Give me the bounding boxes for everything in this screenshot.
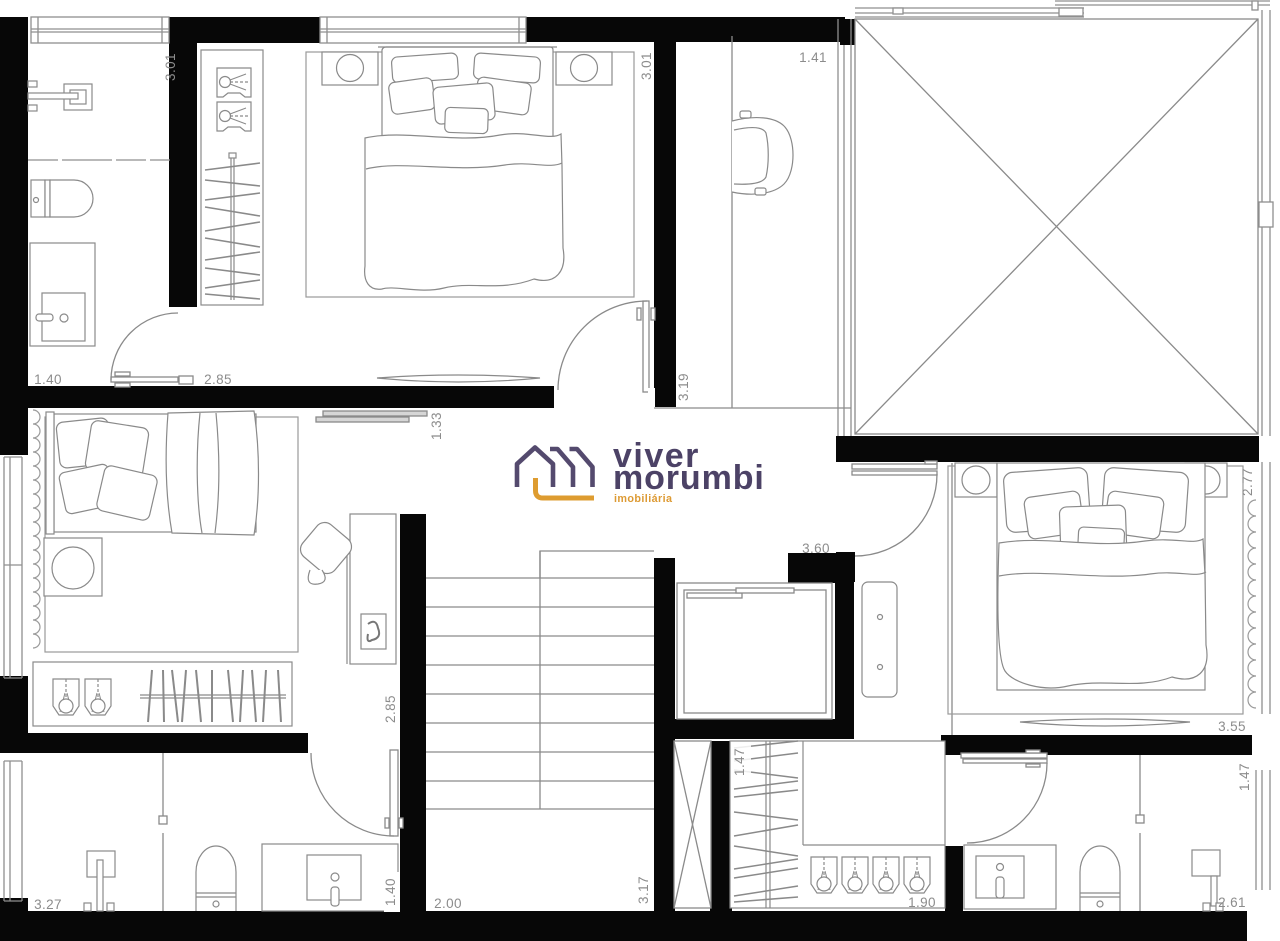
svg-text:3.19: 3.19 xyxy=(676,373,691,401)
svg-text:3.55: 3.55 xyxy=(1218,719,1246,734)
svg-text:1.47: 1.47 xyxy=(1237,763,1252,791)
svg-text:3.17: 3.17 xyxy=(636,876,651,904)
svg-text:1.41: 1.41 xyxy=(799,50,827,65)
svg-text:2.85: 2.85 xyxy=(383,695,398,723)
svg-text:2.00: 2.00 xyxy=(434,896,462,911)
svg-text:3.60: 3.60 xyxy=(802,541,830,556)
svg-text:3.27: 3.27 xyxy=(34,897,62,912)
svg-text:3.01: 3.01 xyxy=(163,53,178,81)
svg-text:1.90: 1.90 xyxy=(908,895,936,910)
svg-text:2.85: 2.85 xyxy=(204,372,232,387)
svg-text:1.47: 1.47 xyxy=(732,748,747,776)
svg-text:1.33: 1.33 xyxy=(429,412,444,440)
svg-text:1.40: 1.40 xyxy=(34,372,62,387)
svg-text:1.40: 1.40 xyxy=(383,878,398,906)
svg-text:morumbi: morumbi xyxy=(613,459,765,497)
svg-text:imobiliária: imobiliária xyxy=(614,493,673,505)
svg-text:2.61: 2.61 xyxy=(1218,895,1246,910)
svg-text:3.01: 3.01 xyxy=(639,52,654,80)
svg-text:2.77: 2.77 xyxy=(1240,468,1255,496)
